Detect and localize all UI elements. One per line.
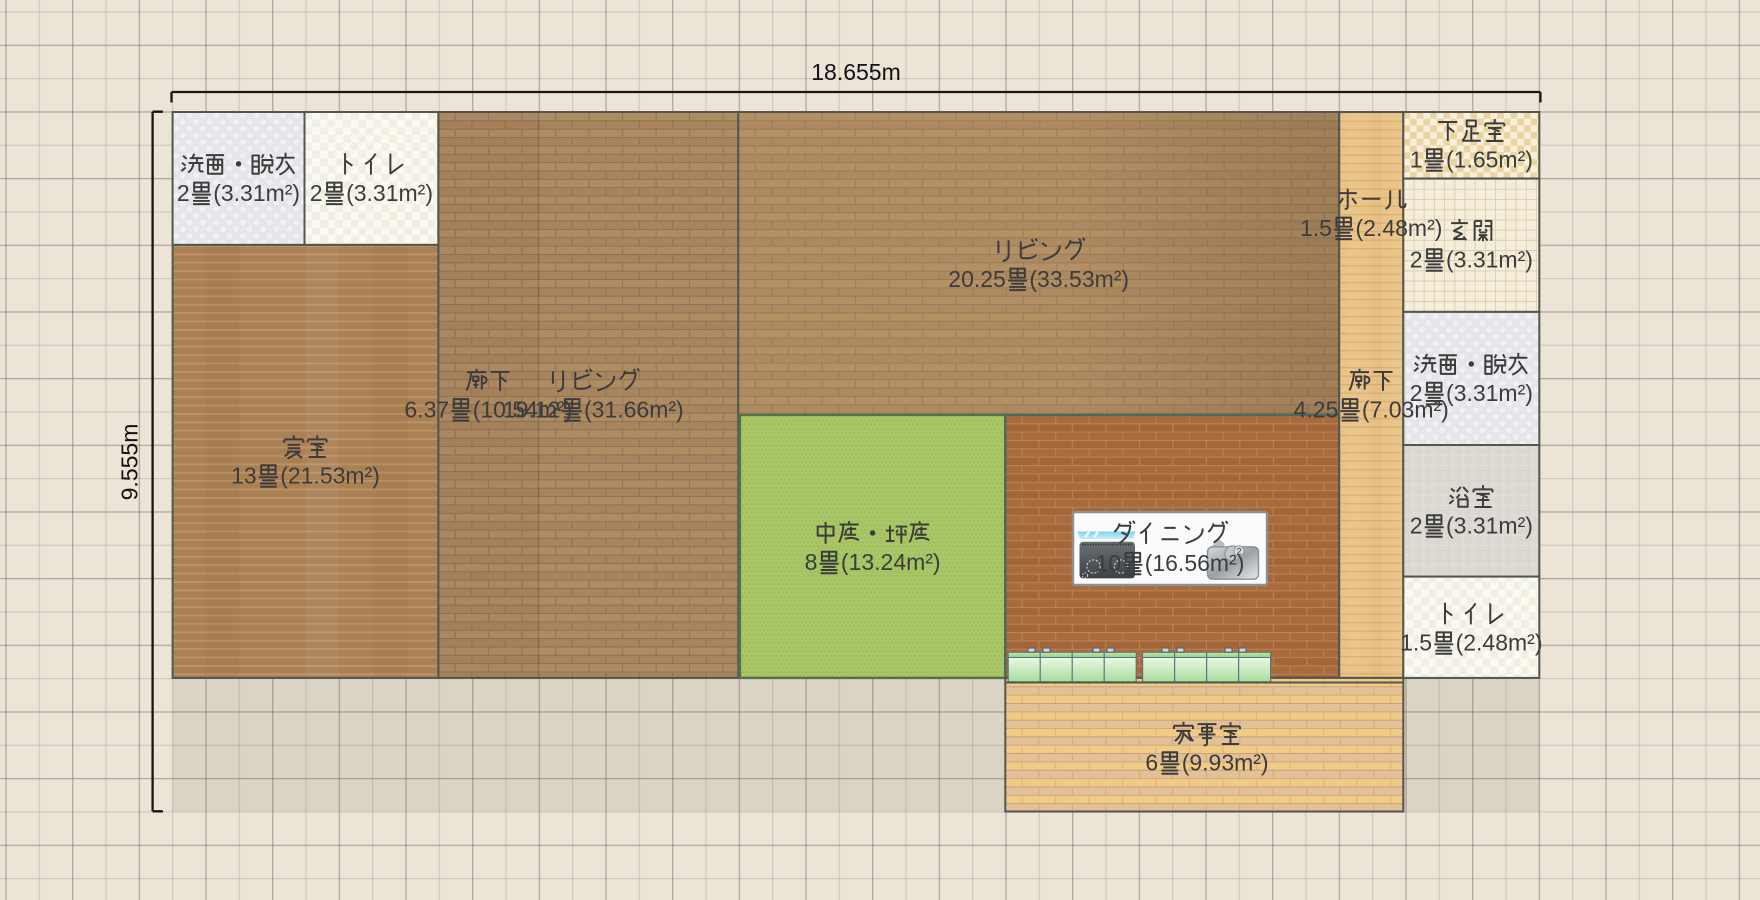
svg-text:(2.48m²): (2.48m²): [1456, 630, 1543, 656]
svg-text:(9.93m²): (9.93m²): [1182, 750, 1269, 776]
svg-text:(1.65m²): (1.65m²): [1446, 147, 1533, 173]
svg-text:(16.56m²): (16.56m²): [1145, 550, 1245, 576]
svg-text:2: 2: [310, 180, 323, 206]
svg-text:6: 6: [1145, 750, 1158, 776]
svg-text:6.37: 6.37: [404, 397, 449, 423]
svg-text:(33.53m²): (33.53m²): [1029, 266, 1129, 292]
svg-text:8: 8: [805, 549, 818, 575]
svg-text:20.25: 20.25: [948, 266, 1006, 292]
svg-text:(3.31m²): (3.31m²): [1446, 247, 1533, 273]
svg-text:1: 1: [1410, 147, 1423, 173]
svg-text:2: 2: [1410, 513, 1423, 539]
svg-text:2: 2: [177, 180, 190, 206]
svg-text:(3.31m²): (3.31m²): [1446, 513, 1533, 539]
svg-text:9.555m: 9.555m: [117, 424, 143, 501]
svg-text:(13.24m²): (13.24m²): [841, 549, 941, 575]
svg-text:(3.31m²): (3.31m²): [213, 180, 300, 206]
svg-text:4.25: 4.25: [1294, 397, 1339, 423]
svg-text:1.5: 1.5: [1400, 630, 1432, 656]
svg-text:(3.31m²): (3.31m²): [1446, 380, 1533, 406]
svg-text:18.655m: 18.655m: [811, 59, 901, 85]
svg-text:19.12: 19.12: [503, 397, 561, 423]
svg-text:(2.48m²): (2.48m²): [1356, 215, 1443, 241]
svg-text:2: 2: [1410, 380, 1423, 406]
svg-text:(3.31m²): (3.31m²): [346, 180, 433, 206]
svg-text:(31.66m²): (31.66m²): [584, 397, 684, 423]
svg-text:1.5: 1.5: [1300, 215, 1332, 241]
svg-text:(21.53m²): (21.53m²): [280, 463, 380, 489]
svg-text:2: 2: [1410, 247, 1423, 273]
svg-text:10: 10: [1096, 550, 1122, 576]
svg-text:13: 13: [231, 463, 257, 489]
